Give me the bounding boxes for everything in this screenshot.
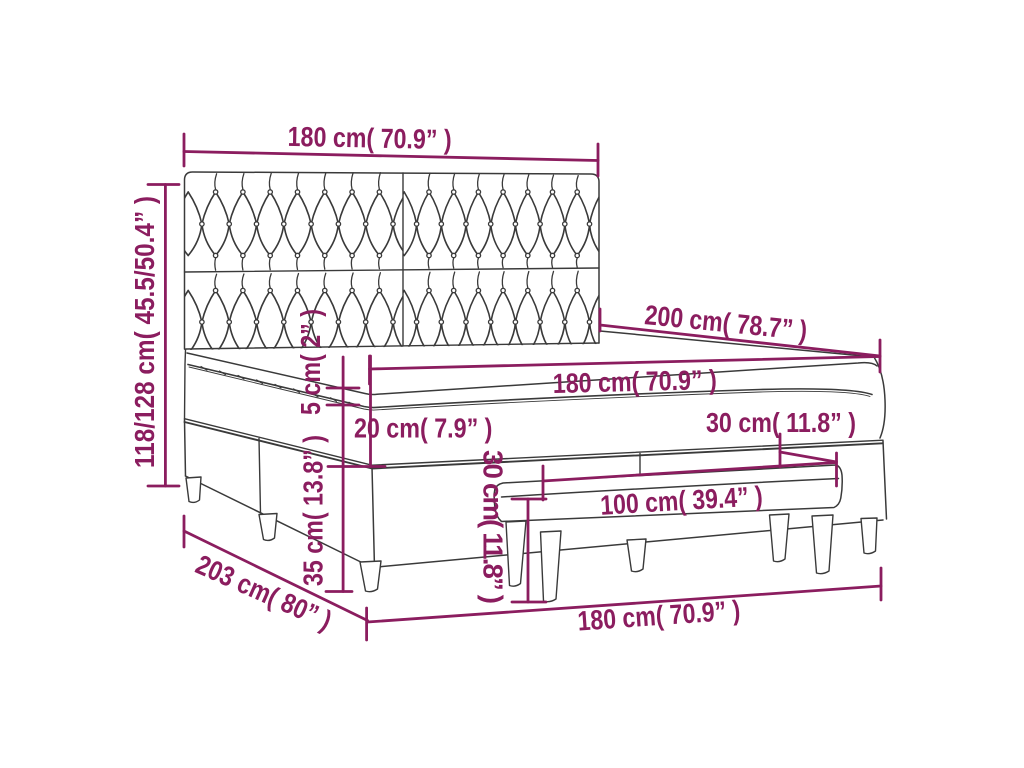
svg-text:35 cm( 13.8” ): 35 cm( 13.8” ) [297, 435, 328, 586]
svg-text:20 cm( 7.9” ): 20 cm( 7.9” ) [354, 413, 493, 444]
svg-text:30 cm( 11.8” ): 30 cm( 11.8” ) [477, 450, 508, 604]
svg-text:30 cm( 11.8” ): 30 cm( 11.8” ) [706, 407, 856, 438]
svg-text:118/128 cm( 45.5/50.4” ): 118/128 cm( 45.5/50.4” ) [129, 196, 160, 468]
svg-text:180 cm( 70.9” ): 180 cm( 70.9” ) [552, 364, 717, 399]
svg-text:5 cm( 2” ): 5 cm( 2” ) [295, 309, 326, 415]
svg-text:180 cm( 70.9” ): 180 cm( 70.9” ) [287, 121, 452, 155]
